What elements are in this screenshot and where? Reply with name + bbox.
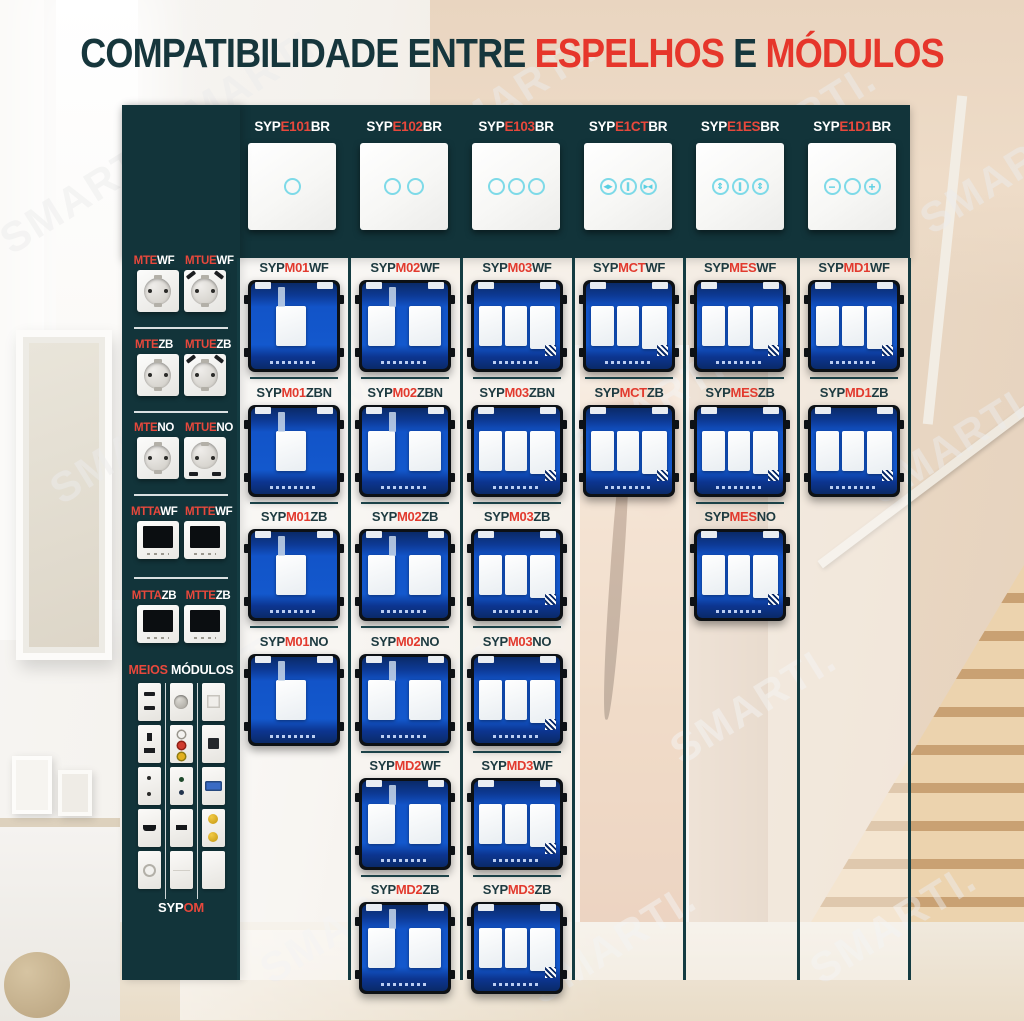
module-pad [428,531,444,538]
module-sticker [389,909,397,929]
button-pad [276,555,306,595]
pcb-text [381,610,429,613]
qr-code [545,594,556,605]
row-divider [696,502,784,504]
label-suffix: ZB [421,509,438,524]
module-slot: SYPMD3ZB [463,882,571,994]
title-modulos: MÓDULOS [766,30,944,76]
button-pad [642,431,667,474]
socket-clip [154,387,162,391]
touch-circle-icon [407,178,424,195]
module-tab [355,793,361,802]
qr-code [545,470,556,481]
module-label: SYPM02NO [351,634,459,650]
row-divider [361,626,449,628]
pcb-text [381,361,429,364]
label-code: M03 [508,260,532,275]
module-pad [478,531,494,538]
divider [134,577,228,579]
module-pad [478,904,494,911]
module-tab [784,348,790,357]
button-pad [617,306,639,346]
label-suffix: ZB [158,339,173,351]
label-code: MTE [135,339,158,351]
label-suffix: WF [533,758,553,773]
label-code: E102 [392,119,422,134]
module-tab [561,846,567,855]
pcb-text [270,361,318,364]
pcb-text [270,486,318,489]
label-suffix: WF [160,506,177,518]
module-tab [355,846,361,855]
button-pad [842,431,864,471]
label-code: MD2 [396,882,423,897]
module-tab [355,917,361,926]
button-pad [728,555,750,595]
row-divider [585,377,673,379]
module-image [359,405,451,497]
label-code: E103 [504,119,534,134]
row-divider [473,751,561,753]
label-suffix: ZB [162,590,177,602]
label-code: MD2 [394,758,421,773]
label-suffix: WF [421,758,441,773]
socket-pin [211,456,215,460]
module-pad [877,407,893,414]
module-pad [701,531,717,538]
module-pcb [362,781,448,867]
button-pad [816,431,839,471]
dimmer-circle-icon [844,178,861,195]
module-slot: SYPM03ZBN [463,385,571,497]
module-pad [255,282,271,289]
module-sticker [278,661,286,681]
module-image [248,529,340,621]
heading-rest: MÓDULOS [168,663,234,677]
module-pad [428,780,444,787]
module-label: MTTEZB [185,590,231,602]
socket-clip [154,359,162,363]
module-tab [338,544,344,553]
sidebar-row-tiles [122,605,240,643]
label-prefix: SYP [813,119,839,134]
module-pad [366,904,382,911]
module-slot: SYPM02NO [351,634,459,746]
module-image [471,529,563,621]
module-label: SYPMCTWF [575,260,683,276]
label-prefix: SYP [261,509,286,524]
pcb-text [716,610,764,613]
label-code: M02 [396,260,420,275]
module-pcb [474,905,560,991]
label-prefix: SYP [478,119,504,134]
label-code: MTE [134,255,157,267]
module-tab [804,473,810,482]
meio-rca-triple [170,725,193,763]
touch-circle-icon [384,178,401,195]
module-image [808,405,900,497]
module-pad [590,282,606,289]
row-divider [250,502,338,504]
module-tab [561,917,567,926]
socket-pin [211,289,215,293]
module-pad [701,407,717,414]
label-prefix: SYP [367,385,392,400]
module-pad [478,656,494,663]
pcb-text [830,486,878,489]
row-divider [250,626,338,628]
label-code: M01 [285,634,309,649]
meio-usb-single [170,809,193,847]
qr-code [657,470,668,481]
module-sticker [389,412,397,432]
meio-tv-round [170,683,193,721]
button-pad [642,306,667,349]
label-code: MCT [620,385,647,400]
button-pad [479,928,502,968]
module-slot: SYPM01ZB [240,509,348,621]
bg-small-frame [58,770,92,816]
qr-code [768,470,779,481]
module-tab [244,669,250,678]
sidebar-row-tiles [122,521,240,559]
curtain-close-icon: ▸◂ [640,178,657,195]
label-prefix: SYP [369,758,394,773]
sidebar-row-mtta-zb: MTTAZBMTTEZB [122,590,240,643]
socket-pin [164,456,168,460]
meio-usb-double [138,683,161,721]
module-label: MTEWF [131,255,177,267]
label-code: MCT [618,260,645,275]
module-tab [784,420,790,429]
sidebar-row-mtta-wf: MTTAWFMTTEWF [122,506,240,559]
label-suffix: ZB [647,385,664,400]
label-prefix: SYP [483,634,508,649]
button-pad [505,804,527,844]
row-divider [361,377,449,379]
module-tab [244,473,250,482]
button-pad [409,804,441,844]
module-pcb [474,532,560,618]
row-divider [361,875,449,877]
meio-coax [138,851,161,889]
espelho-label: SYPE102BR [348,119,460,139]
label-suffix: NO [309,634,328,649]
label-prefix: SYP [370,260,395,275]
socket-clip [154,442,162,446]
label-suffix: WF [215,506,232,518]
title-espelhos: ESPELHOS [535,30,724,76]
label-code: E1CT [615,119,648,134]
bg-basket [4,952,70,1018]
module-label: SYPM02WF [351,260,459,276]
module-label: MTTAZB [131,590,177,602]
meios-grid-row [122,767,240,805]
label-prefix: SYP [701,119,727,134]
pcb-text [493,361,541,364]
label-suffix: BR [760,119,779,134]
module-label: SYPMD1WF [800,260,908,276]
module-label: SYPMESWF [686,260,794,276]
module-tab [690,544,696,553]
qr-code [882,470,893,481]
button-pad [409,431,441,471]
module-label: SYPMD2ZB [351,882,459,898]
module-tab [561,348,567,357]
module-tab [804,348,810,357]
label-suffix: WF [870,260,890,275]
label-code: M02 [397,509,421,524]
module-tab [561,597,567,606]
label-code: M01 [286,509,310,524]
qr-code [768,345,779,356]
module-pad [478,407,494,414]
modules-panel: SYPM01WF SYPM01ZBN SYPM01ZB SYPM01NO SY [237,258,911,980]
module-tab [467,348,473,357]
faceplate-shutter-image: ⇕∥⇕ [696,143,784,230]
module-sticker [278,287,286,307]
module-tab [561,295,567,304]
module-pcb [251,657,337,743]
module-slot: SYPMD2ZB [351,882,459,994]
button-pad [368,555,395,595]
label-suffix: NO [216,422,233,434]
socket-pin [148,289,152,293]
module-pcb [474,408,560,494]
socket-pin [211,373,215,377]
label-suffix: ZBN [417,385,443,400]
module-pcb [251,408,337,494]
faceplate-dimmer-image: −+ [808,143,896,230]
label-suffix: ZB [871,385,888,400]
pcb-text [716,486,764,489]
module-pad [540,531,556,538]
curtain-open-icon: ◂▸ [600,178,617,195]
module-tab [449,793,455,802]
module-pcb [362,905,448,991]
module-slot: SYPMESZB [686,385,794,497]
pcb-text [605,486,653,489]
module-label: SYPM01NO [240,634,348,650]
button-pad [702,431,725,471]
module-image [694,405,786,497]
module-label: SYPMD1ZB [800,385,908,401]
label-prefix: SYP [705,385,730,400]
socket-pin [164,289,168,293]
espelho-label: SYPE1D1BR [796,119,908,139]
label-code: M01 [285,260,309,275]
row-divider [250,377,338,379]
module-tab [338,473,344,482]
button-pad [368,804,395,844]
thermostat-image [184,605,226,643]
button-pad [530,306,555,349]
label-suffix: ZB [310,509,327,524]
module-pad [317,407,333,414]
module-slot: SYPMCTWF [575,260,683,372]
module-tab [804,420,810,429]
module-image [359,654,451,746]
label-prefix: SYP [482,260,507,275]
faceplate-touch3-image [472,143,560,230]
module-tab [690,348,696,357]
module-slot: SYPM03ZB [463,509,571,621]
module-slot: SYPMD2WF [351,758,459,870]
sidebar-row-labels: MTTAZBMTTEZB [122,590,240,602]
module-label: MTUENO [185,422,231,434]
sidebar-row-tiles [122,437,240,479]
module-tab [784,544,790,553]
pcb-text [493,859,541,862]
meio-hdmi [138,809,161,847]
module-tab [467,793,473,802]
button-pad [867,306,892,349]
socket-clip [201,359,209,363]
module-label: MTUEWF [185,255,231,267]
meios-grid-row [122,683,240,721]
sidebar-row-tiles [122,270,240,312]
module-label: SYPMESZB [686,385,794,401]
module-pcb [474,283,560,369]
label-code: M01 [281,385,305,400]
label-code: MTUE [185,339,216,351]
module-pad [428,656,444,663]
meios-modulos-heading: MEIOS MÓDULOS [122,663,240,677]
socket-pin [148,456,152,460]
module-pcb [697,283,783,369]
module-tab [561,420,567,429]
button-pad [368,928,395,968]
button-pad [728,306,750,346]
module-pad [540,282,556,289]
module-tab [449,722,455,731]
pcb-text [381,486,429,489]
module-tab [467,420,473,429]
touch-circle-icon [528,178,545,195]
module-tab [338,295,344,304]
meio-sat-double [202,809,225,847]
bg-small-frame [12,756,52,814]
label-prefix: SYP [594,385,619,400]
label-code: MTTA [132,590,162,602]
label-code: E1D1 [839,119,872,134]
module-label: MTTAWF [131,506,177,518]
module-label: SYPMD3ZB [463,882,571,898]
module-tab [467,970,473,979]
espelho-group-e1ct: SYPE1CTBR ◂▸∥▸◂ [572,119,684,230]
module-sticker [389,287,397,307]
module-tab [579,473,585,482]
label-prefix: SYP [371,882,396,897]
module-pad [652,407,668,414]
module-label: SYPM02ZB [351,509,459,525]
module-label: SYPM01ZBN [240,385,348,401]
module-tab [338,348,344,357]
pcb-text [493,610,541,613]
label-suffix: WF [309,260,329,275]
row-divider [473,626,561,628]
module-label: MTENO [131,422,177,434]
socket-clip [154,470,162,474]
dimmer-minus-icon: − [824,178,841,195]
label-prefix: SYP [484,509,509,524]
module-pad [540,780,556,787]
module-pad [763,282,779,289]
meios-grid-row [122,809,240,847]
thermostat-image [137,605,179,643]
module-label: SYPMD3WF [463,758,571,774]
module-tab [898,420,904,429]
module-pcb [362,532,448,618]
label-code: M02 [396,634,420,649]
button-pad [479,680,502,720]
thermostat-screen [190,610,220,632]
module-image [471,405,563,497]
espelho-group-e1d1: SYPE1D1BR −+ [796,119,908,230]
row-divider [473,875,561,877]
label-prefix: SYP [479,385,504,400]
sidebar-row-labels: MTENOMTUENO [122,422,240,434]
module-tab [467,846,473,855]
module-pad [815,407,831,414]
module-image [471,778,563,870]
label-prefix: SYP [818,260,843,275]
module-tab [355,669,361,678]
module-tab [449,597,455,606]
module-pad [428,282,444,289]
button-pad [530,680,555,723]
label-code: E1ES [727,119,760,134]
label-prefix: SYP [820,385,845,400]
module-tab [338,420,344,429]
socket-clip [201,387,209,391]
module-tab [355,544,361,553]
module-image [248,280,340,372]
thermostat-keys [147,637,169,639]
label-suffix: ZB [534,882,551,897]
socket-pin [195,289,199,293]
module-tab [449,295,455,304]
module-tab [784,597,790,606]
module-pad [590,407,606,414]
pcb-text [270,735,318,738]
module-tab [338,722,344,731]
module-slot: SYPMESWF [686,260,794,372]
button-pad [530,804,555,847]
button-pad [530,928,555,971]
button-pad [505,306,527,346]
label-suffix: WF [756,260,776,275]
pcb-text [493,486,541,489]
socket-clip [154,303,162,307]
label-prefix: SYP [593,260,618,275]
label-prefix: SYP [254,119,280,134]
label-code: M03 [504,385,528,400]
qr-code [657,345,668,356]
sidebar-row-labels: MTTAWFMTTEWF [122,506,240,518]
label-suffix: WF [420,260,440,275]
row-divider [361,751,449,753]
label-suffix: ZB [758,385,775,400]
module-pad [540,656,556,663]
button-pad [842,306,864,346]
module-label: SYPM03WF [463,260,571,276]
module-tab [561,544,567,553]
module-slot: SYPM03NO [463,634,571,746]
infographic-canvas: SMARTI. SMARTI. SMARTI. SMARTI. SMARTI. … [0,0,1024,1021]
sidebar-row-mte-no: MTENOMTUENO [122,422,240,479]
espelho-group-e1es: SYPE1ESBR ⇕∥⇕ [684,119,796,230]
